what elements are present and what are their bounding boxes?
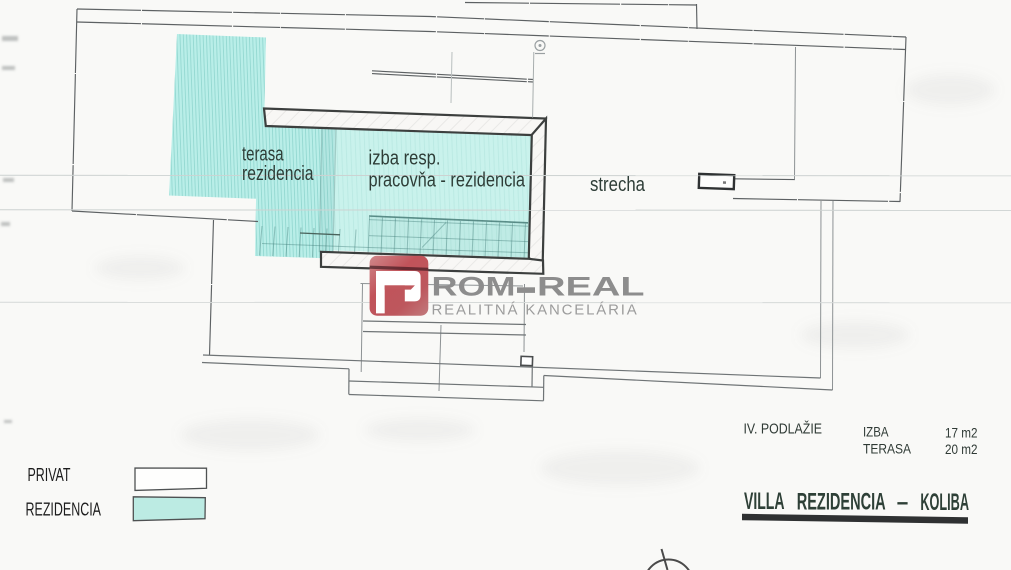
svg-text:IZBA: IZBA	[863, 424, 889, 440]
svg-text:IV. PODLAŽIE: IV. PODLAŽIE	[744, 421, 823, 438]
svg-text:REAL: REAL	[537, 271, 645, 301]
svg-text:izba resp.: izba resp.	[369, 148, 441, 170]
svg-text:REALITNÁ KANCELÁRIA: REALITNÁ KANCELÁRIA	[432, 301, 640, 318]
svg-text:REZIDENCIA: REZIDENCIA	[797, 489, 886, 516]
svg-text:PRIVAT: PRIVAT	[28, 465, 71, 485]
svg-text:ROM: ROM	[432, 271, 516, 301]
svg-text:REZIDENCIA: REZIDENCIA	[26, 500, 102, 520]
svg-text:KOLIBA: KOLIBA	[920, 489, 969, 516]
svg-text:VILLA: VILLA	[744, 488, 785, 515]
svg-text:17 m2: 17 m2	[945, 425, 978, 441]
svg-text:rezidencia: rezidencia	[242, 163, 314, 185]
svg-text:20 m2: 20 m2	[945, 441, 978, 457]
svg-text:strecha: strecha	[590, 174, 646, 196]
svg-text:pracovňa - rezidencia: pracovňa - rezidencia	[369, 170, 526, 192]
svg-text:–: –	[897, 489, 909, 516]
svg-text:TERASA: TERASA	[863, 441, 912, 457]
